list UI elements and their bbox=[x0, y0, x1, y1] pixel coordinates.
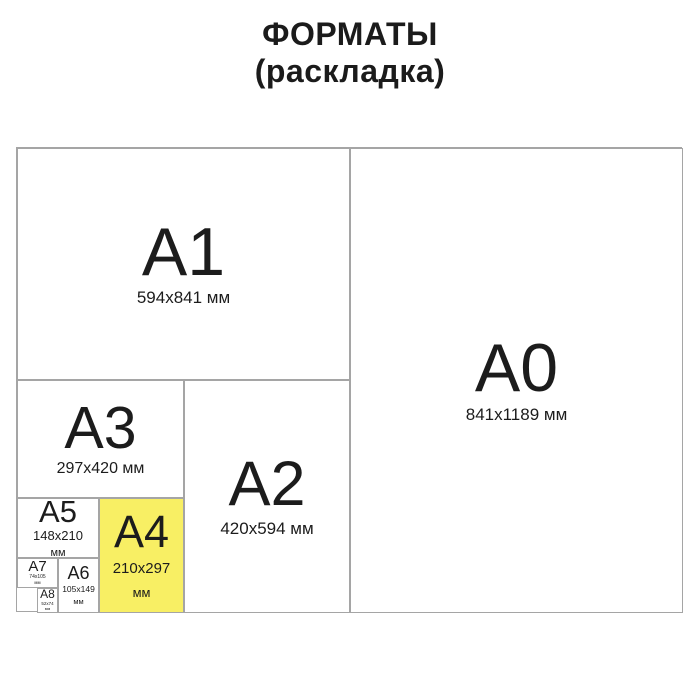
format-a6-label: A6 bbox=[67, 565, 89, 582]
format-box-a3: A3 297x420 мм bbox=[17, 380, 184, 498]
format-a7-label: A7 bbox=[28, 560, 46, 574]
format-a0-size: 841x1189 мм bbox=[466, 406, 568, 425]
format-box-a2: A2 420x594 мм bbox=[184, 380, 350, 613]
format-a6-size-unit: мм bbox=[73, 598, 83, 606]
format-box-a4: A4 210x297 мм bbox=[99, 498, 184, 613]
format-box-a5: A5 148x210 мм bbox=[17, 498, 99, 558]
format-a0-label: A0 bbox=[475, 336, 558, 401]
format-a8-label: A8 bbox=[40, 589, 55, 600]
format-a2-size: 420x594 мм bbox=[220, 520, 313, 539]
format-a6-size: 105x149 bbox=[62, 585, 95, 594]
page-title-line1: ФОРМАТЫ bbox=[0, 16, 700, 53]
format-box-a8: A8 52x74 мм bbox=[37, 588, 58, 613]
page-title: ФОРМАТЫ (раскладка) bbox=[0, 16, 700, 90]
format-a4-label: A4 bbox=[114, 511, 169, 554]
formats-diagram: A0 841x1189 мм A1 594x841 мм A2 420x594 … bbox=[16, 147, 682, 612]
format-a3-size: 297x420 мм bbox=[57, 460, 145, 478]
format-a5-size-unit: мм bbox=[50, 547, 65, 558]
format-a5-label: A5 bbox=[39, 498, 77, 526]
format-a4-size: 210x297 bbox=[113, 561, 171, 578]
format-a3-label: A3 bbox=[64, 400, 136, 456]
format-box-a6: A6 105x149 мм bbox=[58, 558, 99, 613]
format-a7-size-unit: мм bbox=[34, 581, 40, 586]
page-title-line2: (раскладка) bbox=[0, 53, 700, 90]
format-a2-label: A2 bbox=[228, 455, 305, 515]
format-box-a1: A1 594x841 мм bbox=[17, 148, 350, 380]
format-box-a0: A0 841x1189 мм bbox=[350, 148, 683, 613]
format-a1-size: 594x841 мм bbox=[137, 289, 230, 308]
format-a8-size-unit: мм bbox=[45, 607, 51, 611]
format-a5-size: 148x210 bbox=[33, 529, 83, 543]
format-a4-size-unit: мм bbox=[133, 586, 151, 600]
page: ФОРМАТЫ (раскладка) A0 841x1189 мм A1 59… bbox=[0, 0, 700, 700]
format-a1-label: A1 bbox=[142, 220, 225, 285]
format-box-a7: A7 74x105 мм bbox=[17, 558, 58, 588]
